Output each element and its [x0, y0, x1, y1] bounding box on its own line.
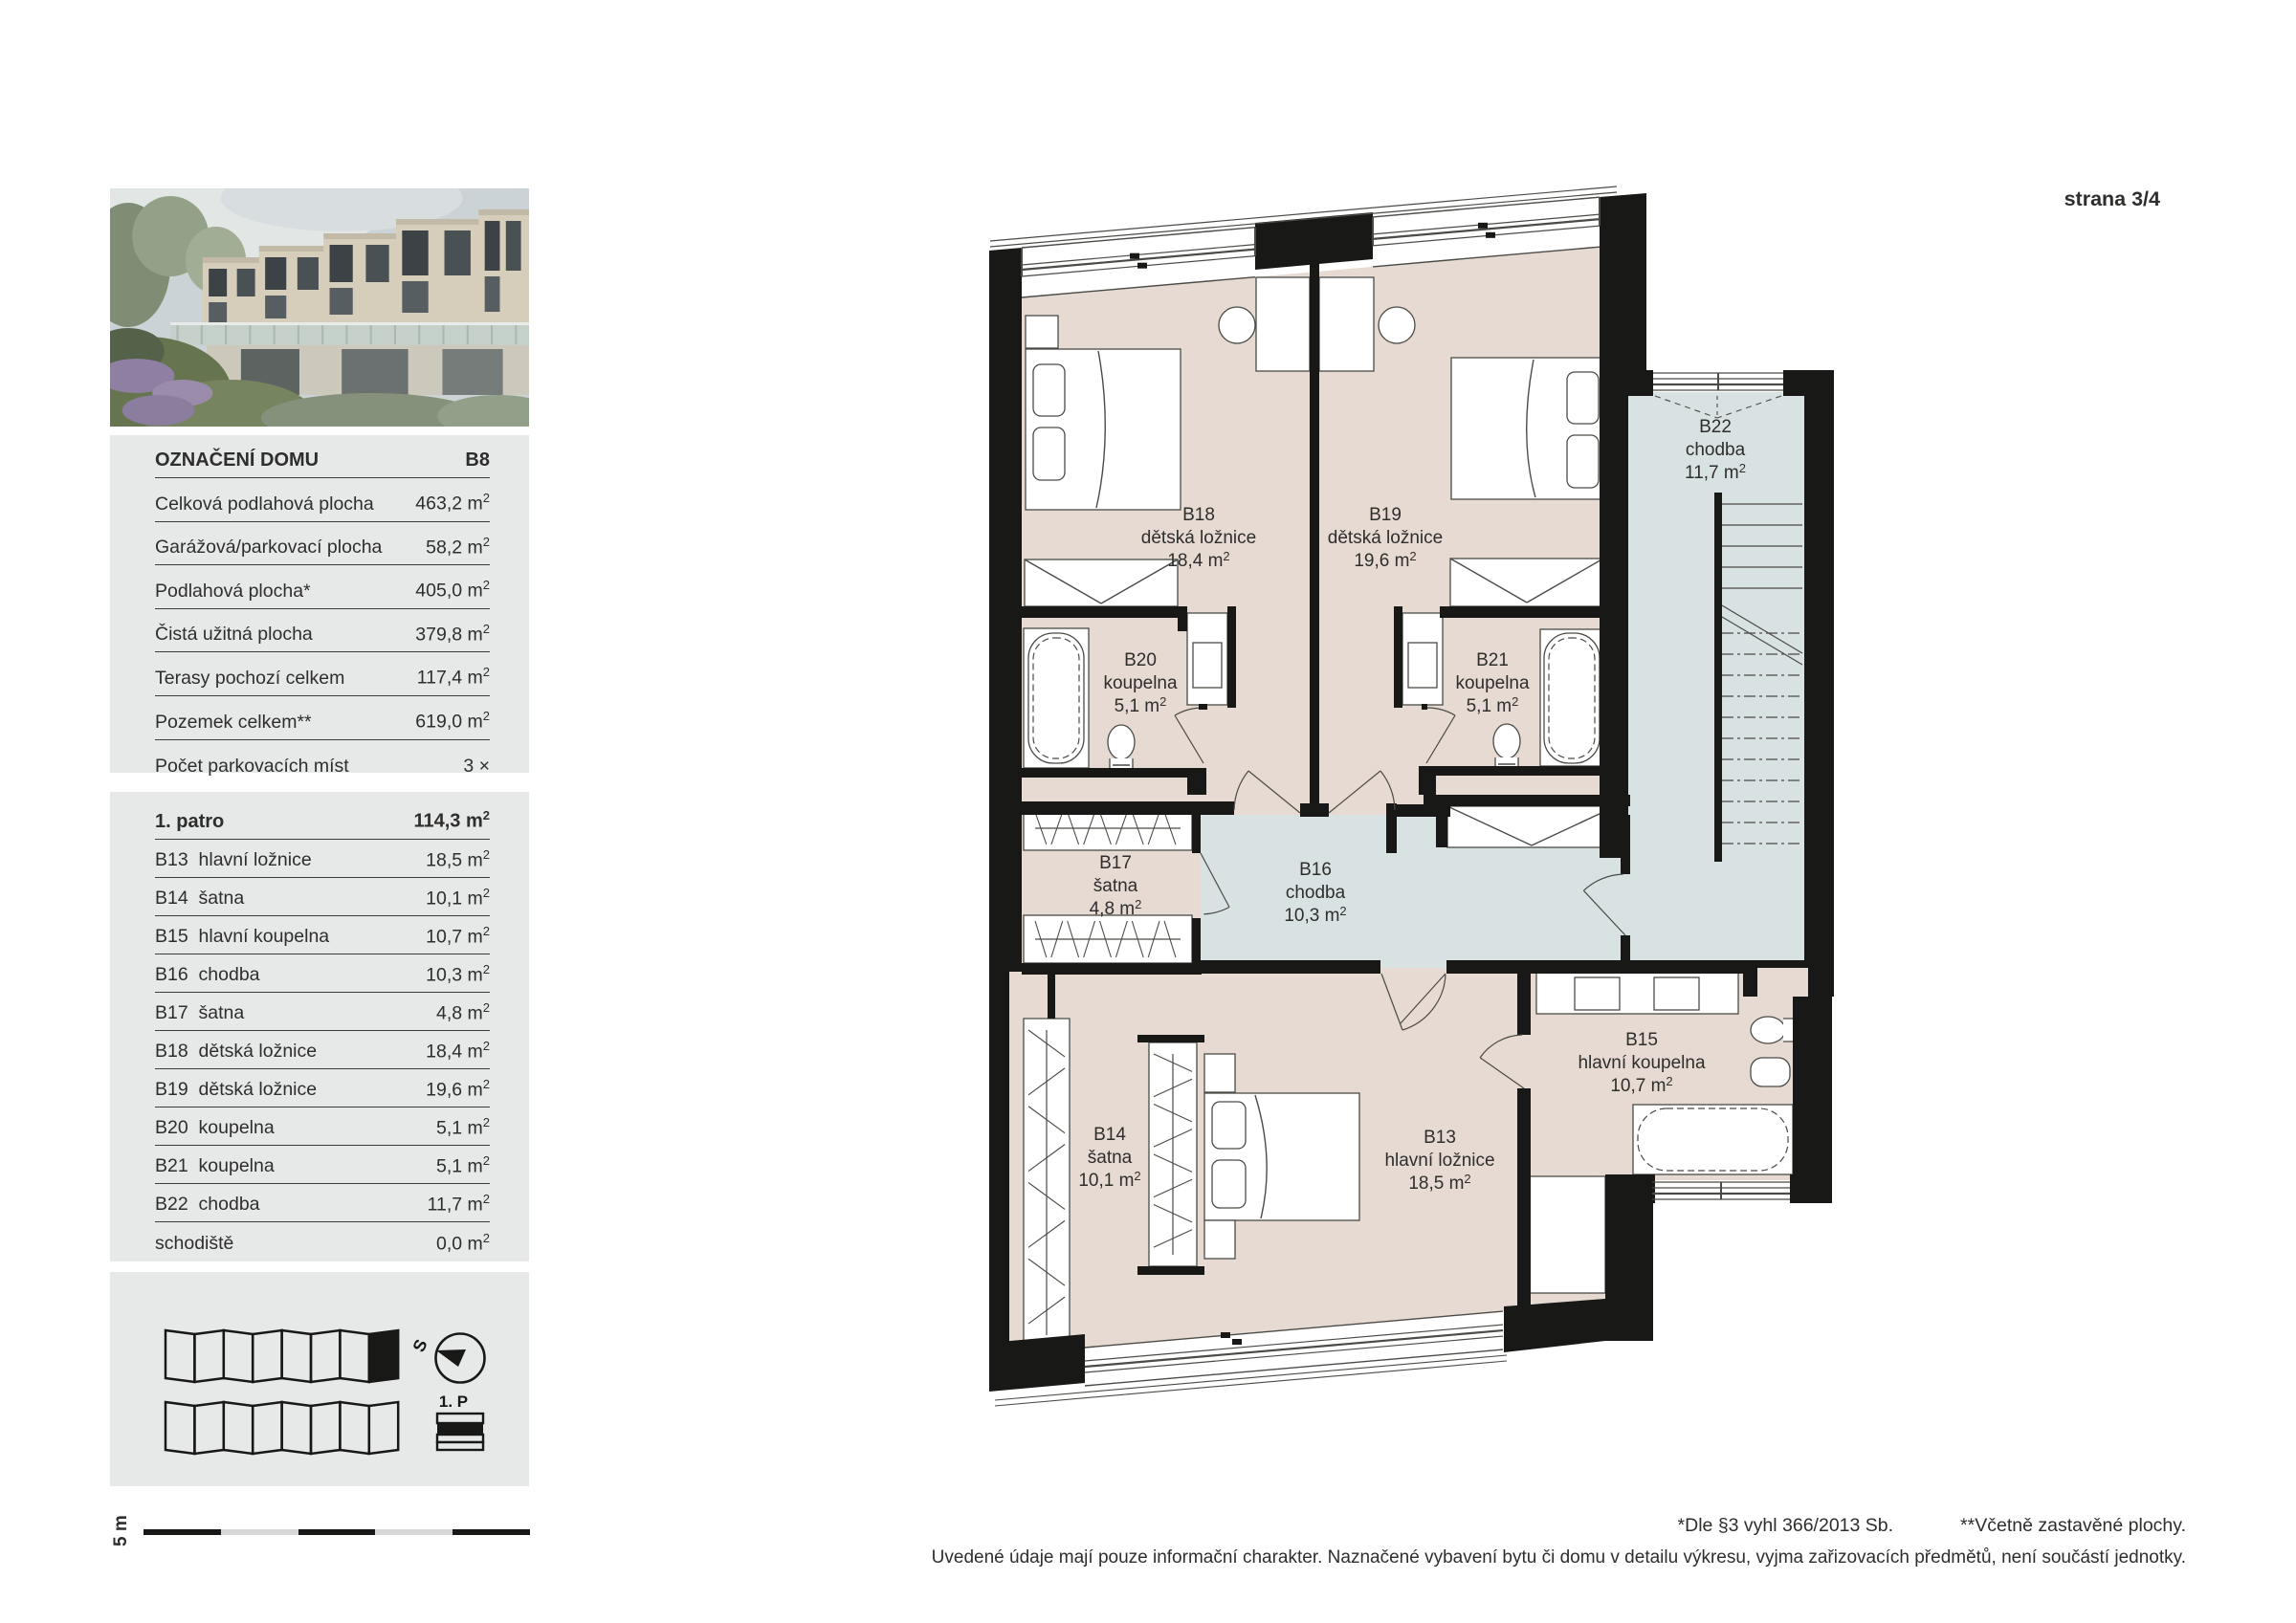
svg-text:B21: B21	[1476, 650, 1509, 670]
svg-text:18,4 m2: 18,4 m2	[1167, 549, 1229, 571]
svg-text:B16: B16	[1299, 860, 1332, 880]
svg-text:B17: B17	[1099, 853, 1132, 873]
svg-text:B20: B20	[1124, 650, 1157, 670]
svg-text:10,3 m2: 10,3 m2	[1284, 904, 1346, 926]
svg-text:dětská ložnice: dětská ložnice	[1141, 528, 1256, 548]
svg-text:11,7 m2: 11,7 m2	[1685, 461, 1746, 483]
svg-text:1. P: 1. P	[439, 1393, 468, 1411]
svg-text:hlavní koupelna: hlavní koupelna	[1578, 1053, 1706, 1073]
svg-text:B19: B19	[1369, 505, 1402, 525]
svg-text:S: S	[408, 1336, 430, 1354]
svg-text:chodba: chodba	[1686, 440, 1746, 460]
svg-text:B15: B15	[1625, 1030, 1658, 1050]
svg-text:4,8 m2: 4,8 m2	[1090, 897, 1142, 919]
svg-text:18,5 m2: 18,5 m2	[1408, 1172, 1470, 1194]
svg-text:šatna: šatna	[1088, 1148, 1133, 1168]
svg-text:hlavní ložnice: hlavní ložnice	[1384, 1151, 1494, 1171]
svg-text:koupelna: koupelna	[1455, 673, 1530, 693]
svg-text:B13: B13	[1424, 1128, 1456, 1148]
svg-text:5,1 m2: 5,1 m2	[1467, 694, 1519, 716]
svg-text:10,1 m2: 10,1 m2	[1078, 1169, 1140, 1191]
svg-text:koupelna: koupelna	[1103, 673, 1178, 693]
svg-text:chodba: chodba	[1286, 883, 1346, 903]
svg-text:B22: B22	[1699, 417, 1732, 437]
svg-text:B14: B14	[1093, 1125, 1126, 1145]
svg-text:10,7 m2: 10,7 m2	[1610, 1074, 1672, 1096]
svg-text:B18: B18	[1182, 505, 1215, 525]
svg-text:šatna: šatna	[1093, 876, 1138, 896]
svg-text:5,1 m2: 5,1 m2	[1115, 694, 1167, 716]
svg-text:19,6 m2: 19,6 m2	[1354, 549, 1416, 571]
svg-text:dětská ložnice: dětská ložnice	[1328, 528, 1443, 548]
